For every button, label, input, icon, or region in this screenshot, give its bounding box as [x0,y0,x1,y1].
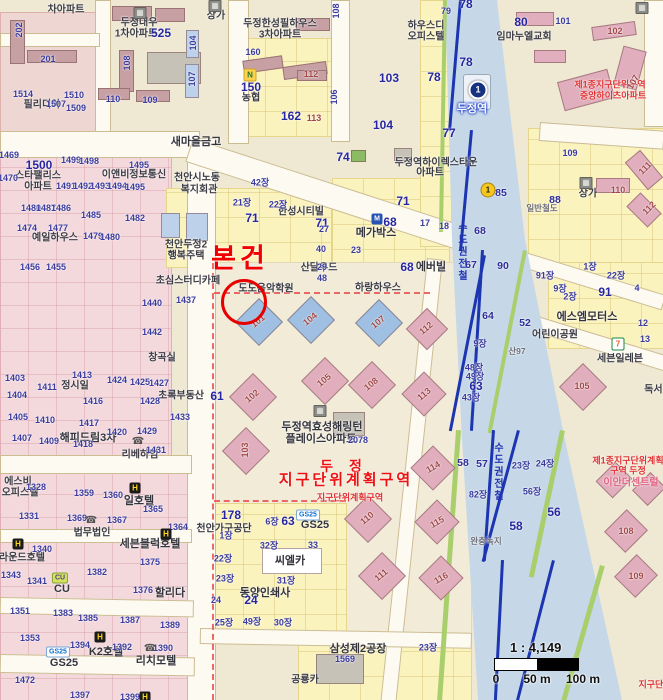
parcel-number: 80 [514,15,527,29]
building-icon: ▦ [314,405,327,417]
map-label: 공룡카 [291,671,319,686]
parcel-number: 78 [427,70,440,84]
scale-tick-50: 50 m [523,672,550,686]
parcel-number: 1428 [140,396,160,406]
parcel-number: 1416 [83,396,103,406]
parcel-number: 1359 [74,488,94,498]
parcel-number: 1397 [70,690,90,700]
parcel-number: 4 [634,283,639,293]
parcel-number: 101 [555,16,570,26]
parcel-number: 23장 [216,572,234,585]
building-icon: ▦ [580,177,593,189]
parcel-number: 1341 [27,576,47,586]
parcel-number: 25장 [215,616,233,629]
parcel-number: 104 [188,35,198,50]
parcel-number: 1431 [146,445,166,455]
parcel-number: 1411 [37,382,57,392]
scale-bar: 1 : 4,149 0 50 m 100 m [486,640,651,692]
parcel-number: 1385 [78,613,98,623]
parcel-number: 17 [420,218,430,228]
parcel-number: 24 [211,595,221,605]
parcel-number: 78 [459,0,472,11]
map-label: 산97 [508,345,525,357]
parcel-number: 160 [245,47,260,57]
parcel-number: 1407 [12,433,32,443]
parcel-number: 1343 [1,570,21,580]
cu-store-icon: CU [52,573,68,584]
parcel-number: 22장 [269,198,287,211]
parcel-number: 78 [459,55,472,69]
district-boundary-line [212,263,214,700]
map-label: 어린이공원 [532,326,578,341]
parcel-number: 1장 [583,260,596,273]
parcel-number: 24 [244,593,257,607]
subject-label: 본건 [211,237,269,276]
parcel-number: 56 [547,505,560,519]
parcel-number: 1389 [160,620,180,630]
parcel-number: 1360 [103,490,123,500]
parcel-number: 61 [210,389,223,403]
parcel-number: 49장 [243,615,261,628]
parcel-number: 1367 [107,515,127,525]
hotel-icon: H [161,529,172,540]
parcel-number: 79 [441,6,451,16]
parcel-number: 1417 [79,418,99,428]
parcel-number: 1482 [125,213,145,223]
parcel-number: 21장 [233,196,251,209]
parcel-number: 1392 [112,642,132,652]
parcel-number: 1495 [129,160,149,170]
parcel-number: 33 [308,540,318,550]
scale-bar-graphic [494,658,579,671]
parcel-number: 102 [607,26,622,36]
parcel-number: 85 [495,187,507,199]
parcel-number: 29 [317,262,327,272]
parcel-number: 108 [331,3,341,18]
map-label: 창곡실 [148,349,176,364]
parcel-number: 105 [574,381,589,391]
map-label: 완충녹지 [470,535,501,547]
parcel-number: 1498 [79,156,99,166]
parcel-number: 1474 [17,223,37,233]
parcel-number: 1509 [66,103,86,113]
parcel-number: 91 [598,285,611,299]
parcel-number: 23장 [419,641,437,654]
parcel-number: 1480 [100,232,120,242]
map-label: 할리다 [155,584,185,600]
map-label: 에버빌 [416,258,446,274]
nh-bank-icon: N [244,69,257,82]
parcel-number: 1510 [64,90,84,100]
hotel-icon: H [140,692,151,700]
building [351,150,366,162]
map-label: 초록부동산 [158,387,204,402]
parcel-number: 109 [628,571,643,581]
parcel-number: 1399 [120,692,140,700]
parcel-number: 162 [281,109,301,123]
parcel-number: 1440 [142,298,162,308]
parcel-number: 202 [14,22,24,37]
map-label: 씨엘카 [275,552,305,568]
map-label: 임마누엘교회 [496,28,551,43]
phone-icon: ☎ [144,644,156,654]
map-canvas[interactable]: 1 : 4,149 0 50 m 100 m 차아파트두정대우1차아파트525두… [0,0,663,700]
parcel-number: 1455 [46,262,66,272]
parcel-number: 42장 [251,176,269,189]
parcel-number: 108 [122,55,132,70]
parcel-number: 31장 [277,574,295,587]
road [644,0,663,127]
parcel-number: 1375 [140,557,160,567]
parcel-number: 48 [317,273,327,283]
parcel-number: 2078 [348,435,368,445]
parcel-number: 74 [336,150,349,164]
road [0,455,192,474]
parcel-number: 201 [40,54,55,64]
parcel-number: 1404 [7,390,27,400]
parcel-number: 107 [187,71,197,86]
map-label: 수도권전철 [454,222,469,282]
parcel-number: 1장 [219,529,232,542]
crossing-line1-badge: 1 [481,183,496,198]
parcel-number: 1365 [143,504,163,514]
parcel-number: 58 [457,457,469,469]
road [331,0,350,142]
parcel-number: 49장 [466,370,484,383]
building-icon: ▦ [209,0,222,12]
scale-ratio: 1 : 4,149 [510,640,561,655]
building [155,8,185,22]
parcel-number: 109 [142,95,157,105]
map-label: 행복주택 [168,247,205,262]
map-label: 플레이스아파트 [286,430,357,446]
map-label: 차아파트 [48,1,85,16]
parcel-number: 106 [329,89,339,104]
parcel-number: 18 [439,221,449,231]
parcel-number: 1383 [53,608,73,618]
map-label: CU [54,583,70,595]
subject-marker-circle [221,279,267,325]
parcel-number: 1477 [48,223,68,233]
parcel-number: 1424 [107,375,127,385]
parcel-number: 9장 [473,337,486,350]
parcel-number: 1442 [142,327,162,337]
parcel-number: 3차아파트 [259,26,301,41]
road [95,0,111,137]
parcel-number: 110 [611,185,626,195]
parcel-number: 1485 [81,210,101,220]
parcel-number: 71 [245,211,258,225]
parcel-number: 22장 [214,552,232,565]
map-label: 독서실 [644,381,663,396]
phone-icon: ☎ [85,516,97,526]
parcel-number: 109 [562,148,577,158]
parcel-number: 113 [307,113,322,123]
parcel-number: 1409 [39,436,59,446]
gs25-store-icon: GS25 [296,510,320,521]
parcel-number: 1351 [10,606,30,616]
parcel-number: 13 [640,334,650,344]
parcel-number: 525 [151,26,171,40]
subway-line1-badge: 1 [469,81,488,100]
parcel-number: 104 [373,118,393,132]
parcel-number: 1410 [35,415,55,425]
parcel-number: 103 [240,442,250,457]
map-label: 에스엠모터스 [557,308,618,324]
parcel-number: 58 [509,519,522,533]
parcel-number: 1328 [26,482,46,492]
map-label: 지구단위계획구역 [279,469,413,490]
map-label: 아파트 [416,164,444,179]
parcel-number: 1456 [20,262,40,272]
parcel-number: 1437 [176,295,196,305]
map-label: 새마을금고 [171,133,222,149]
building [534,50,566,63]
gs25-store-icon: GS25 [46,647,70,658]
parcel-number: 1394 [70,640,90,650]
parcel-number: 103 [379,71,399,85]
parcel-number: 24장 [536,457,554,470]
hotel-icon: H [13,539,24,550]
scale-tick-100: 100 m [566,672,600,686]
parcel-number: 64 [482,310,494,322]
map-label: 수도권전철 [490,442,505,502]
parcel-number: 1514 [13,89,33,99]
parcel-number: 23장 [512,459,530,472]
parcel-number: 43장 [462,391,480,404]
parcel-number: 27 [319,224,329,234]
parcel-number: 77 [442,126,455,140]
parcel-number: 1405 [8,412,28,422]
phone-icon: ☎ [132,437,144,447]
parcel-number: 1353 [20,633,40,643]
parcel-number: 1403 [5,373,25,383]
parcel-number: 1420 [107,427,127,437]
parcel-number: 1495 [125,182,145,192]
parcel-number: 1429 [137,426,157,436]
parcel-number: 1470 [0,173,18,183]
parcel-number: 1382 [87,567,107,577]
parcel-number: 82장 [469,488,487,501]
parcel-number: 1413 [72,370,92,380]
map-label: 리치모텔 [136,652,176,668]
parcel-number: 1486 [51,203,71,213]
map-label: 이안더센트럴 [603,474,658,489]
parcel-number: 110 [106,94,121,104]
parcel-number: 1472 [15,675,35,685]
parcel-number: 1427 [149,378,169,388]
map-label: 하랑하우스 [355,279,401,294]
parcel-number: 1569 [335,654,355,664]
scale-bar-white-segment [495,659,537,670]
hotel-icon: H [95,632,106,643]
parcel-number: 6장 [265,515,278,528]
map-label: 아파트 [24,178,52,193]
building-icon: ▦ [134,7,147,19]
map-label: 중앙하이츠아파트 [580,89,646,102]
map-label: 오피스텔 [408,28,445,43]
parcel-number: 68 [383,215,396,229]
map-label: 복지회관 [181,181,218,196]
parcel-number: 30장 [274,616,292,629]
parcel-number: 68 [400,260,413,274]
parcel-number: 1340 [32,544,52,554]
parcel-number: 57 [476,458,488,470]
scale-tick-0: 0 [493,672,500,686]
parcel-number: 108 [618,526,633,536]
parcel-number: 1425 [130,377,150,387]
parcel-number: 63 [281,514,294,528]
map-label: 지구단위계획구역 [317,491,383,504]
building [161,213,180,238]
parcel-number: 150 [241,80,261,94]
parcel-number: 112 [304,69,319,79]
parcel-number: 71 [396,194,409,208]
parcel-number: 1331 [19,511,39,521]
cinema-icon: M [372,214,383,225]
parcel-number: 88 [549,194,561,206]
map-label: GS25 [301,519,329,531]
parcel-number: 32장 [260,539,278,552]
scale-bar-black-segment [537,659,578,670]
parcel-number: 56장 [523,485,541,498]
parcel-number: 1376 [133,585,153,595]
parcel-number: 90 [497,260,509,272]
parcel-number: 23 [351,245,361,255]
parcel-number: 91장 [536,269,554,282]
hotel-icon: H [130,483,141,494]
parcel-number: 1433 [170,412,190,422]
parcel-number: 22장 [607,269,625,282]
station-label: 두정역 [457,100,487,116]
parcel-number: 12 [638,318,648,328]
map-label: 세븐일레븐 [597,350,643,365]
parcel-number: 178 [221,508,241,522]
seven-eleven-icon: 7 [612,338,625,351]
parcel-number: 40 [316,244,326,254]
parcel-number: 52 [519,317,531,329]
parcel-number: 1418 [73,439,93,449]
building-icon: ▦ [636,2,649,14]
parcel-number: 1387 [120,615,140,625]
parcel-number: 1469 [0,150,19,160]
parcel-number: 9장 [553,282,566,295]
parcel-number: 1500 [26,158,53,172]
map-label: GS25 [50,657,78,669]
parcel-number: 1507 [46,99,66,109]
parcel-number: 68 [474,225,486,237]
